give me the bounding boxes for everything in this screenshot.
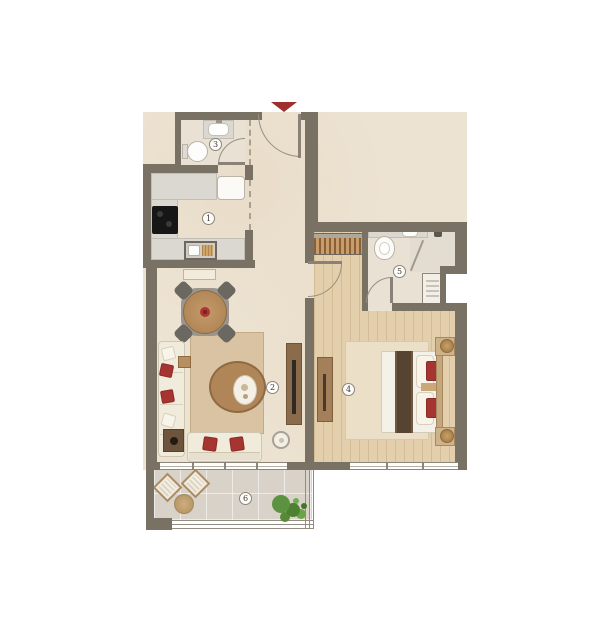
bedroom-door-leaf xyxy=(308,261,342,264)
window-living xyxy=(160,462,287,470)
wall-segment xyxy=(305,298,314,470)
wall-segment xyxy=(146,470,154,522)
pillow xyxy=(229,436,245,452)
pillow xyxy=(160,389,175,404)
wall-segment xyxy=(305,232,314,263)
plant xyxy=(272,495,290,513)
kitchen-sink-unit xyxy=(184,241,217,260)
sofa-bottom xyxy=(187,432,262,462)
cooktop xyxy=(152,206,178,234)
window-bedroom xyxy=(350,462,458,470)
wall-segment xyxy=(146,462,160,470)
wall-segment xyxy=(313,462,350,470)
kitchen-bench xyxy=(183,269,216,280)
table-flowers xyxy=(200,307,210,317)
bath3-door-arc xyxy=(218,138,245,165)
entrance-arrow-icon xyxy=(271,102,297,112)
room-label-living: 2 xyxy=(266,381,279,394)
opening-dashed xyxy=(249,180,251,230)
bedroom-dresser xyxy=(317,357,333,422)
opening-dashed xyxy=(249,120,251,165)
floor-lamp xyxy=(272,431,290,449)
bath5-door-leaf xyxy=(390,277,393,303)
lamp xyxy=(440,429,454,443)
wall-segment xyxy=(455,303,467,470)
kitchen-counter-top xyxy=(151,173,217,200)
wall-segment xyxy=(305,222,467,232)
wall-segment xyxy=(245,165,253,180)
room-label-ensuite: 5 xyxy=(393,265,406,278)
bath5-door-arc xyxy=(366,277,392,303)
bath3-toilet xyxy=(187,141,208,162)
bath3-toilet-tank xyxy=(182,144,188,159)
bed-runner xyxy=(395,351,413,433)
bedroom-door-arc xyxy=(308,263,342,297)
balcony-railing-bottom xyxy=(154,520,314,529)
wall-segment xyxy=(305,112,318,232)
wall-segment xyxy=(146,518,172,530)
lamp xyxy=(440,339,454,353)
bath5-toilet xyxy=(374,236,395,260)
tv-unit xyxy=(286,343,302,425)
wardrobe xyxy=(313,233,363,255)
pillow xyxy=(202,436,218,452)
wall-segment xyxy=(458,462,467,470)
floor-plan: 1 2 3 4 5 6 xyxy=(0,0,609,640)
wall-segment xyxy=(181,165,218,173)
balcony-table xyxy=(174,494,194,514)
room-label-bedroom: 4 xyxy=(342,383,355,396)
wall-segment xyxy=(146,262,157,470)
room-label-balcony: 6 xyxy=(239,492,252,505)
wall-segment xyxy=(287,462,313,470)
wall-segment xyxy=(143,164,151,268)
room-label-bathroom: 3 xyxy=(209,138,222,151)
bath3-vanity xyxy=(203,120,234,139)
wall-segment xyxy=(143,260,255,268)
corner-table xyxy=(163,429,184,452)
bath3-door-leaf xyxy=(218,162,245,165)
headboard xyxy=(436,349,443,435)
building-notch xyxy=(446,274,467,303)
pillow xyxy=(159,363,174,378)
wall-segment xyxy=(392,303,446,311)
coffee-table xyxy=(209,361,266,413)
refrigerator xyxy=(217,176,245,200)
entrance-door-arc xyxy=(258,114,301,157)
wall-segment xyxy=(175,112,262,120)
sofa-side-table xyxy=(178,356,191,368)
entrance-door-leaf xyxy=(298,114,301,158)
room-label-kitchen: 1 xyxy=(202,212,215,225)
